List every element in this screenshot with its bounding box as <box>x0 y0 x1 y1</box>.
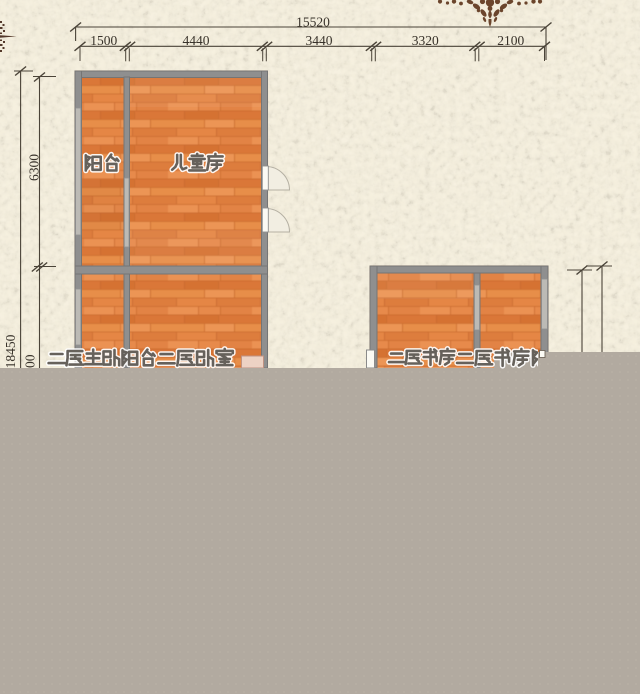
svg-text:3320: 3320 <box>412 33 439 48</box>
svg-text:3440: 3440 <box>306 33 333 48</box>
svg-text:4440: 4440 <box>183 33 210 48</box>
svg-text:18450: 18450 <box>3 334 18 368</box>
svg-text:1500: 1500 <box>90 33 117 48</box>
svg-text:6300: 6300 <box>27 154 42 181</box>
svg-text:15520: 15520 <box>296 15 330 30</box>
svg-text:2100: 2100 <box>497 33 524 48</box>
